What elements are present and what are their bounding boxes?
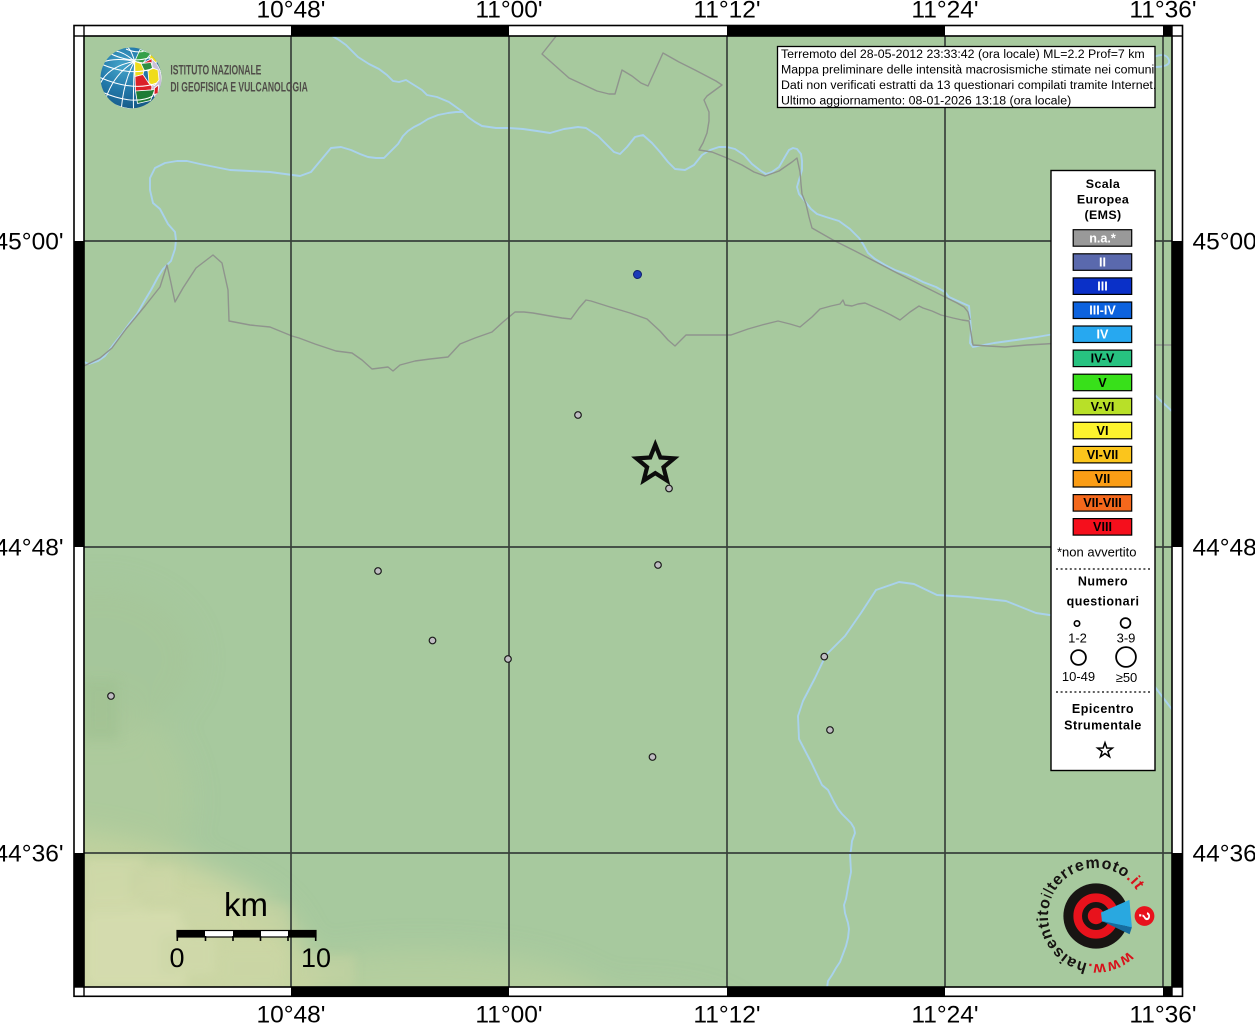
svg-text:Dati non verificati estratti d: Dati non verificati estratti da 13 quest…: [781, 78, 1156, 92]
svg-text:11°12': 11°12': [693, 1002, 760, 1024]
svg-text:44°48': 44°48': [0, 535, 64, 562]
svg-text:III: III: [1097, 280, 1108, 294]
svg-text:11°00': 11°00': [475, 0, 542, 24]
svg-text:V: V: [1098, 376, 1107, 390]
svg-text:*non avvertito: *non avvertito: [1057, 545, 1137, 560]
svg-text:?: ?: [1135, 910, 1153, 921]
svg-text:Numero: Numero: [1078, 575, 1128, 589]
svg-text:n.a.*: n.a.*: [1089, 231, 1116, 245]
svg-text:11°36': 11°36': [1129, 0, 1196, 24]
svg-text:0: 0: [169, 943, 184, 973]
svg-text:1-2: 1-2: [1068, 631, 1087, 646]
svg-text:II: II: [1099, 255, 1106, 269]
svg-text:V-VI: V-VI: [1091, 400, 1115, 414]
svg-text:≥50: ≥50: [1116, 670, 1138, 685]
svg-text:ISTITUTO NAZIONALE: ISTITUTO NAZIONALE: [170, 64, 261, 78]
svg-text:3-9: 3-9: [1117, 631, 1136, 646]
svg-text:Terremoto del 28-05-2012 23:33: Terremoto del 28-05-2012 23:33:42 (ora l…: [781, 47, 1145, 61]
svg-text:questionari: questionari: [1067, 595, 1140, 609]
svg-text:11°36': 11°36': [1129, 1002, 1196, 1024]
svg-text:10-49: 10-49: [1062, 669, 1095, 684]
svg-text:IV: IV: [1097, 328, 1109, 342]
svg-text:Strumentale: Strumentale: [1064, 718, 1142, 732]
svg-text:44°36': 44°36': [0, 841, 64, 868]
svg-text:11°00': 11°00': [475, 1002, 542, 1024]
svg-text:IV-V: IV-V: [1091, 352, 1115, 366]
svg-text:11°24': 11°24': [911, 1002, 978, 1024]
svg-text:VII: VII: [1095, 472, 1110, 486]
svg-text:Ultimo aggiornamento: 08-01-20: Ultimo aggiornamento: 08-01-2026 13:18 (…: [781, 94, 1071, 108]
svg-text:10°48': 10°48': [257, 1002, 326, 1024]
svg-text:10: 10: [301, 943, 331, 973]
svg-text:VIII: VIII: [1093, 520, 1112, 534]
svg-text:Epicentro: Epicentro: [1072, 702, 1134, 716]
svg-text:Scala: Scala: [1086, 177, 1120, 191]
svg-text:DI GEOFISICA E VULCANOLOGIA: DI GEOFISICA E VULCANOLOGIA: [170, 80, 307, 94]
svg-text:11°24': 11°24': [911, 0, 978, 24]
svg-text:Europea: Europea: [1077, 193, 1129, 207]
svg-text:VII-VIII: VII-VIII: [1083, 496, 1122, 510]
svg-text:Mappa preliminare delle intens: Mappa preliminare delle intensità macros…: [781, 63, 1154, 77]
svg-text:(EMS): (EMS): [1084, 208, 1121, 222]
svg-text:km: km: [224, 886, 268, 923]
svg-text:10°48': 10°48': [257, 0, 326, 24]
svg-text:45°00': 45°00': [0, 229, 64, 256]
svg-text:11°12': 11°12': [693, 0, 760, 24]
svg-text:VI-VII: VI-VII: [1087, 448, 1119, 462]
svg-text:45°00': 45°00': [1193, 229, 1255, 256]
svg-text:VI: VI: [1097, 424, 1109, 438]
svg-text:III-IV: III-IV: [1089, 304, 1116, 318]
svg-text:44°36': 44°36': [1193, 841, 1255, 868]
svg-text:44°48': 44°48': [1193, 535, 1255, 562]
